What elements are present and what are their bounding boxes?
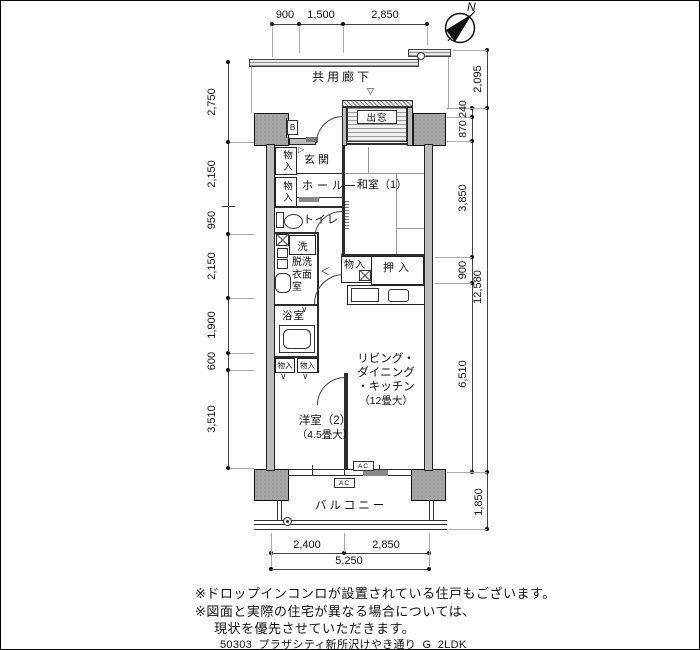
compass-north-label: N xyxy=(467,1,476,14)
ldk-line3: ・キッチン xyxy=(357,381,415,393)
toilet-north-wall xyxy=(275,206,343,208)
plan-filename: 50303_プラザシティ新所沢けやき通り_G_2LDK xyxy=(220,636,466,650)
dim-label-right-inner-4: 6,510 xyxy=(457,352,469,396)
dim-ext xyxy=(230,468,254,469)
dim-label-right-inner-1: 870 xyxy=(457,107,469,151)
hall-label: ホール xyxy=(302,180,347,192)
dim-ext xyxy=(230,234,254,235)
west-room-door-arc xyxy=(317,377,345,405)
washitsu-fusuma xyxy=(345,199,349,229)
dim-label-left-3: 2,150 xyxy=(206,244,218,288)
dim-dot xyxy=(269,567,273,571)
corridor-railing xyxy=(249,59,419,67)
ldk-label: リビング・ダイニング・キッチン（12畳大） xyxy=(344,352,428,408)
dim-label-left-1: 2,150 xyxy=(206,152,218,196)
dim-label-bottom-1: 2,850 xyxy=(364,539,408,551)
washitsu-label: 和室（1） xyxy=(357,179,407,191)
ldk-line4: （12畳大） xyxy=(359,395,413,407)
entrance-door-arc xyxy=(316,116,343,143)
dim-ext xyxy=(344,533,345,552)
washitsu-leader-line xyxy=(344,185,355,186)
south-window-line-1 xyxy=(289,469,412,470)
dim-label-top-1: 1,500 xyxy=(299,9,343,21)
kitchen-stove-icon xyxy=(351,288,379,302)
laundry-box: 洗 xyxy=(289,235,316,255)
storage-label: 物入 xyxy=(279,150,293,173)
balcony-label: バルコニー xyxy=(315,500,387,513)
dim-label-left-2: 950 xyxy=(206,198,218,242)
balcony-rail-left xyxy=(277,501,278,521)
dim-label-left-5: 600 xyxy=(206,339,218,383)
dim-ext xyxy=(449,529,487,530)
dim-label-right-outer-1: 12,580 xyxy=(472,265,484,309)
storage-entrance-1: 物入 xyxy=(275,147,297,175)
dressing-line2: 衣面 xyxy=(292,270,312,281)
west-room-line2: （4.5畳大） xyxy=(297,429,354,441)
south-window-line-2 xyxy=(289,475,412,476)
west-room-line1: 洋室（2） xyxy=(299,415,351,427)
storage-entrance-2: 物入 xyxy=(275,177,297,207)
washroom-south-wall xyxy=(275,304,318,306)
storage-label: 物入 xyxy=(279,181,293,204)
floorplan-canvas: N 900 1,500 2,850 2,750 2,150 950 2,150 … xyxy=(0,0,700,650)
dim-line-top xyxy=(272,24,428,25)
dim-label-bottom-2: 5,250 xyxy=(327,555,371,567)
dim-ext xyxy=(230,298,254,299)
dressing-room-label: 脱洗衣面室 xyxy=(292,257,312,295)
kitchen-sink-icon xyxy=(388,289,409,302)
storage-door-mark: ∨ xyxy=(302,372,309,382)
dim-line-left xyxy=(228,62,229,468)
dim-label-right-inner-2: 3,850 xyxy=(457,176,469,220)
washroom-fixture-1 xyxy=(277,248,288,258)
bath-door-mark: ∨ xyxy=(301,305,308,315)
corridor-label: 共用廊下 xyxy=(312,71,372,84)
balcony-rail-left xyxy=(281,501,282,521)
dim-dot xyxy=(270,22,274,26)
wall-left xyxy=(266,144,275,471)
dim-label-right-outer-2: 1,850 xyxy=(473,480,485,524)
balcony-rail-right xyxy=(429,501,430,521)
dim-label-left-6: 3,510 xyxy=(206,397,218,441)
dim-tick xyxy=(222,206,235,207)
dim-dot xyxy=(341,22,345,26)
entrance-label: 玄関 xyxy=(304,154,332,166)
corridor-drain-icon xyxy=(417,52,425,60)
dim-line-right-outer xyxy=(487,50,488,529)
window-tick xyxy=(344,465,345,476)
note-line-1: ※ドロップインコンロが設置されている住戸もございます。 xyxy=(195,583,556,602)
dim-ext xyxy=(230,353,254,354)
ldk-line2: ダイニング xyxy=(357,367,415,379)
ac-unit-lower: AC xyxy=(334,478,355,488)
pillar-bottom-left xyxy=(254,469,289,501)
compass-icon xyxy=(437,3,489,49)
ldk-line1: リビング・ xyxy=(357,353,415,365)
storage-mid-hatch-icon xyxy=(359,270,371,281)
bay-window-jamb-right xyxy=(407,107,413,146)
pillar-bottom-right xyxy=(411,469,446,501)
dressing-line3: 室 xyxy=(292,282,302,293)
balcony-edge-line xyxy=(254,529,447,530)
window-tick xyxy=(312,465,313,476)
bay-window-label: 出窓 xyxy=(357,110,397,124)
wall-right xyxy=(424,144,433,471)
toilet-bowl-icon xyxy=(284,214,303,229)
tatami-line xyxy=(368,147,369,173)
dim-line-bottom-2 xyxy=(271,569,429,570)
pillar-top-left xyxy=(254,113,289,146)
corridor-railing-step xyxy=(408,49,451,57)
dim-ext xyxy=(343,27,344,53)
bay-window-marker: ▽ xyxy=(367,87,374,97)
dressing-line1: 脱洗 xyxy=(292,257,312,268)
ac-unit-upper: AC xyxy=(353,461,374,471)
entrance-step-line xyxy=(297,173,343,174)
note-line-3: 現状を優先させていただきます。 xyxy=(214,618,415,637)
tatami-line xyxy=(397,228,424,229)
door-swing-arrow: ＜ xyxy=(320,267,330,278)
toilet-tank xyxy=(276,212,284,228)
dim-label-bottom-0: 2,400 xyxy=(285,539,329,551)
hall-step-sill xyxy=(299,197,319,202)
dim-ext xyxy=(453,50,487,51)
meter-box: B xyxy=(287,120,298,135)
dim-label-left-0: 2,750 xyxy=(206,80,218,124)
dim-ext xyxy=(271,533,272,567)
dim-ext xyxy=(230,370,254,371)
dim-ext xyxy=(429,533,430,567)
balcony-drain-dot xyxy=(286,520,289,523)
west-room-label: 洋室（2）（4.5畳大） xyxy=(285,414,365,442)
bay-window-sill xyxy=(342,100,413,107)
bathtub-icon xyxy=(283,329,311,349)
dim-label-right-outer-0: 2,095 xyxy=(472,57,484,101)
dim-dot xyxy=(425,22,429,26)
dim-ext xyxy=(448,54,449,108)
dim-label-top-2: 2,850 xyxy=(363,9,407,21)
dim-ext xyxy=(427,27,428,45)
boundary-line xyxy=(251,67,252,113)
storage-door-mark: ∨ xyxy=(280,372,287,382)
bay-window-inner-line xyxy=(347,143,407,145)
tatami-line xyxy=(345,173,424,174)
dim-dot xyxy=(297,22,301,26)
washing-machine-icon xyxy=(276,234,289,246)
dim-dot xyxy=(427,567,431,571)
dim-ext xyxy=(272,27,273,57)
dim-ext xyxy=(447,472,487,473)
dim-line-bottom-1 xyxy=(271,553,429,554)
dim-dot xyxy=(226,60,230,64)
balcony-rail-right xyxy=(433,501,434,521)
oshiire-label: 押入 xyxy=(383,262,413,274)
washbasin-icon xyxy=(275,273,291,293)
dim-ext xyxy=(299,27,300,53)
dim-label-right-inner-3: 900 xyxy=(457,248,469,292)
washroom-fixture-2 xyxy=(277,259,288,269)
dim-ext xyxy=(230,142,254,143)
pillar-top-right xyxy=(413,113,446,146)
